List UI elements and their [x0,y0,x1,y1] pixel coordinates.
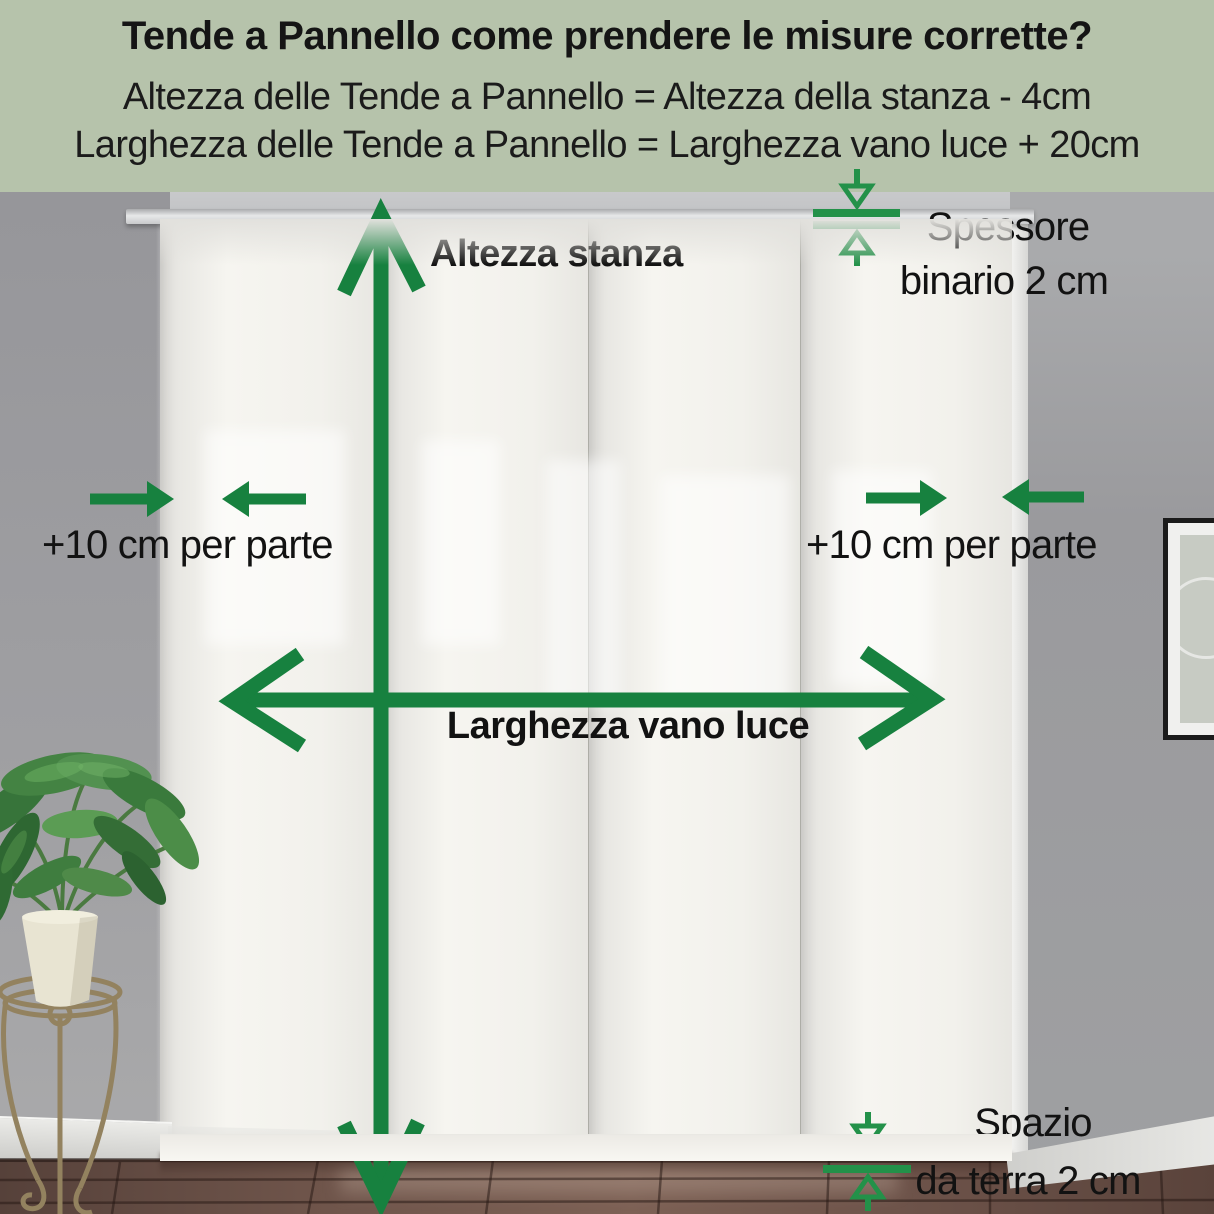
plant-leaves [0,744,207,926]
width-formula-text: Larghezza delle Tende a Pannello = Largh… [0,124,1214,167]
picture-frame [1163,518,1214,740]
side-allowance-right-label: +10 cm per parte [806,522,1097,569]
curtain-hem [160,1134,1012,1161]
light-reflection [832,470,932,685]
frame-artwork [1180,535,1214,723]
curtain-panel [800,219,1012,1161]
height-formula-text: Altezza delle Tende a Pannello = Altezza… [0,76,1214,119]
light-reflection [422,440,500,645]
light-reflection [660,475,790,705]
header-banner: Tende a Pannello come prendere le misure… [0,0,1214,192]
page-title: Tende a Pannello come prendere le misure… [0,14,1214,59]
side-allowance-left-label: +10 cm per parte [42,522,333,569]
plant-stand [0,977,120,1214]
panel-curtains [160,219,1012,1161]
light-reflection [546,460,621,705]
opening-width-label: Larghezza vano luce [447,704,809,749]
measurement-infographic: Tende a Pannello come prendere le misure… [0,0,1214,1214]
track-thickness-label-line2: binario 2 cm [900,258,1108,305]
floor-gap-label-line2: da terra 2 cm [915,1158,1140,1205]
artwork-circle [1180,577,1214,659]
